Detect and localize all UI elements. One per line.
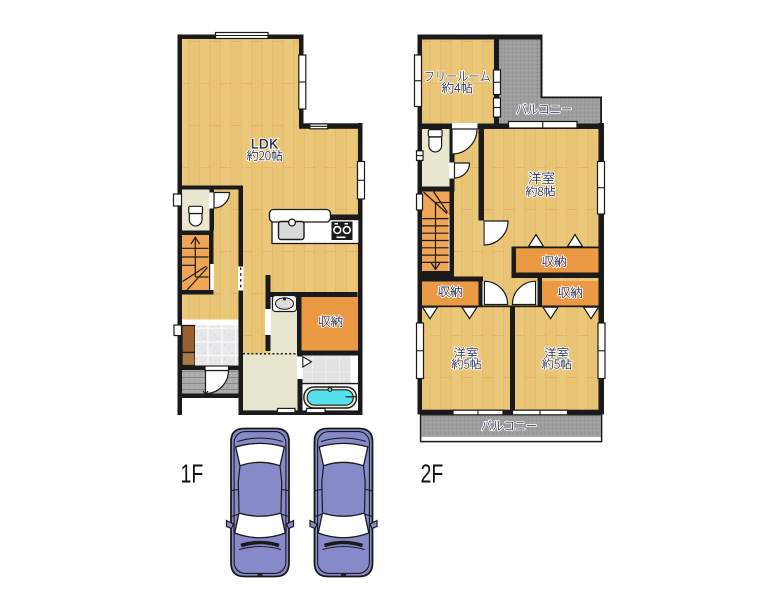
svg-text:1F: 1F bbox=[181, 461, 204, 489]
svg-text:2F: 2F bbox=[421, 461, 444, 489]
